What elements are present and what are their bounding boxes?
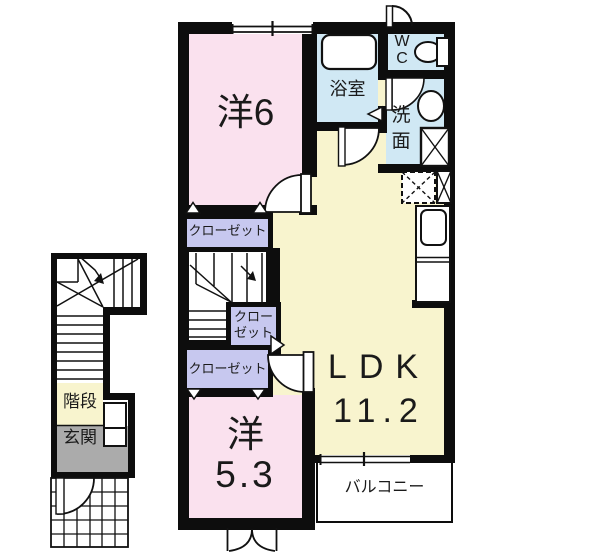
wall-wc-washroom xyxy=(378,70,455,79)
bath-label: 浴室 xyxy=(317,80,378,99)
washroom-label: 洗 面 xyxy=(389,103,413,155)
wall-bedroom6-corner xyxy=(299,205,317,215)
ldk-label: LDK xyxy=(300,350,458,386)
wall-1f-top xyxy=(51,253,147,259)
bedroom53-window xyxy=(228,528,277,551)
closet-south-label: クローゼット xyxy=(184,362,271,376)
balcony-label: バルコニー xyxy=(317,480,452,497)
closet-middle-label: クロー ゼット xyxy=(228,309,279,341)
room-bath xyxy=(317,34,378,122)
bedroom53-label: 洋 xyxy=(189,416,302,455)
stairs-1f-treads xyxy=(57,256,138,379)
stairs-hall-label: 階段 xyxy=(57,393,103,411)
wall-1f-right-upper xyxy=(140,253,147,315)
porch-tile-grid xyxy=(51,478,128,547)
wall-kitchen-stub xyxy=(412,300,455,308)
closet-north-label: クローゼット xyxy=(184,224,271,238)
wall-balcony-top xyxy=(302,455,455,463)
ldk-area-label: 11.2 xyxy=(300,394,458,430)
wall-stairwell-right xyxy=(266,248,280,308)
entrance-door-arc-icon xyxy=(56,478,94,514)
bedroom6-label: 洋6 xyxy=(189,94,302,133)
shoe-cabinet-divider xyxy=(105,427,125,429)
entrance-label: 玄関 xyxy=(57,429,103,447)
wall-1f-right-mid xyxy=(103,307,110,400)
wall-bottom xyxy=(178,518,315,530)
shoe-cabinet xyxy=(103,402,127,447)
floor-plan: 洋6 浴室 W C 洗 面 LDK 11.2 洋 5.3 バルコニー 階段 玄関… xyxy=(0,0,600,558)
wall-left xyxy=(178,22,189,530)
wc-label: W C xyxy=(389,33,415,67)
wall-bedroom6-right xyxy=(302,22,317,177)
wall-bath-bottom xyxy=(302,122,387,131)
wall-1f-right-lower xyxy=(128,393,135,478)
bedroom53-area-label: 5.3 xyxy=(189,456,302,495)
wall-1f-bottom xyxy=(51,472,135,478)
wall-washroom-bottom xyxy=(378,164,455,173)
